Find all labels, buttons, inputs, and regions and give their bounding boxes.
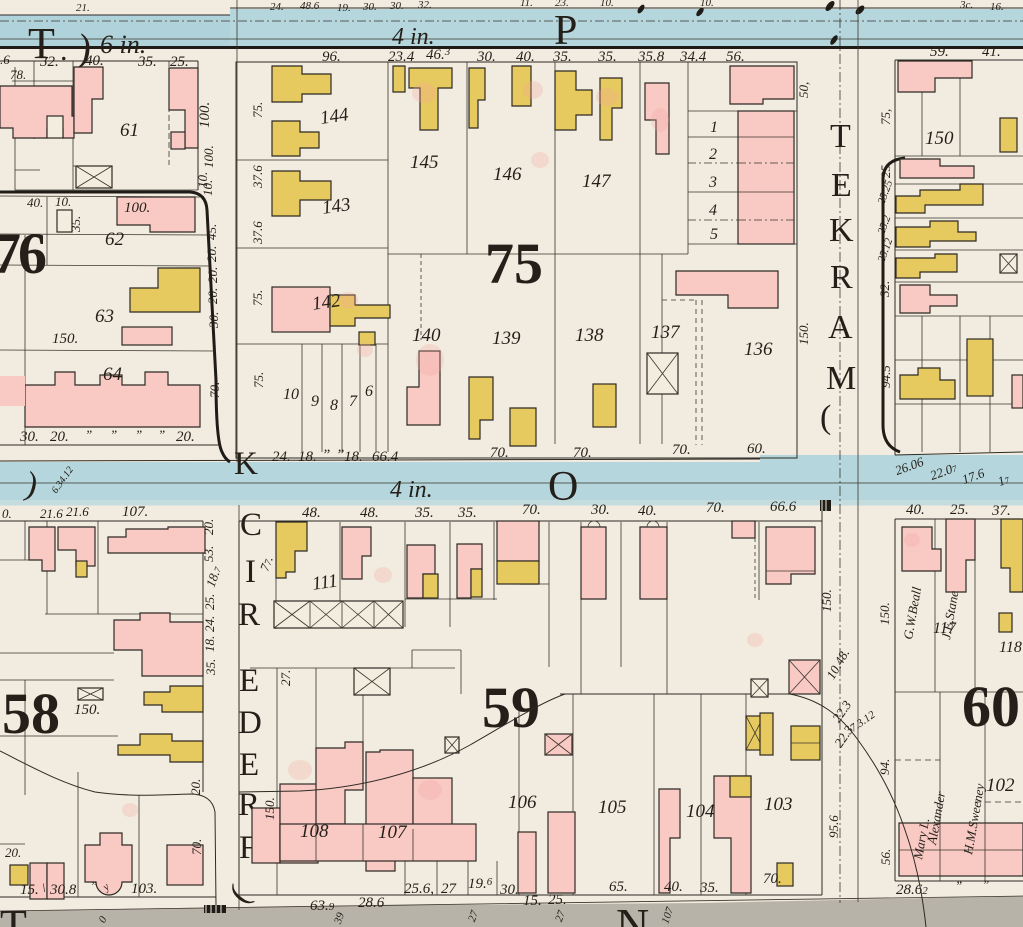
svg-text:18.: 18. bbox=[298, 449, 317, 465]
svg-text:15.: 15. bbox=[20, 882, 39, 898]
svg-text:M: M bbox=[826, 360, 856, 397]
svg-text:24.: 24. bbox=[202, 616, 217, 632]
svg-text:61: 61 bbox=[120, 120, 139, 141]
svg-text:27: 27 bbox=[441, 881, 458, 897]
svg-text:150.: 150. bbox=[819, 589, 834, 612]
svg-text:70.: 70. bbox=[672, 442, 691, 458]
svg-text:35.: 35. bbox=[137, 54, 157, 70]
svg-text:94.5: 94.5 bbox=[878, 365, 893, 388]
svg-text:R: R bbox=[830, 259, 853, 296]
svg-text:37.6: 37.6 bbox=[250, 221, 265, 245]
svg-text:24.: 24. bbox=[272, 449, 291, 465]
svg-text:18.: 18. bbox=[202, 636, 217, 652]
svg-text:100.: 100. bbox=[201, 145, 216, 168]
svg-text:5: 5 bbox=[710, 226, 718, 243]
svg-text:10.: 10. bbox=[200, 180, 215, 196]
svg-text:35.8: 35.8 bbox=[637, 49, 665, 65]
svg-text:10.: 10. bbox=[700, 0, 714, 9]
svg-text:107.: 107. bbox=[122, 504, 148, 520]
svg-text:A: A bbox=[828, 309, 853, 346]
svg-text:21.: 21. bbox=[76, 2, 90, 14]
svg-text:30.: 30. bbox=[389, 0, 404, 12]
svg-text:C: C bbox=[240, 507, 262, 543]
svg-text:K: K bbox=[234, 446, 258, 482]
svg-text:138: 138 bbox=[575, 325, 604, 346]
svg-text:25.: 25. bbox=[878, 162, 893, 178]
svg-text:66.6: 66.6 bbox=[770, 499, 797, 515]
svg-text:30.: 30. bbox=[206, 312, 221, 329]
svg-text:70.: 70. bbox=[189, 839, 204, 855]
svg-text:20.: 20. bbox=[188, 779, 203, 795]
svg-text:107: 107 bbox=[378, 822, 408, 843]
svg-text:.: . bbox=[60, 34, 68, 67]
svg-text:150.: 150. bbox=[74, 702, 100, 718]
svg-text:3c.: 3c. bbox=[959, 0, 973, 11]
svg-text:50,: 50, bbox=[796, 82, 811, 98]
svg-text:(: ( bbox=[820, 399, 831, 436]
svg-text:40.: 40. bbox=[85, 53, 104, 69]
svg-text:63: 63 bbox=[95, 306, 114, 327]
svg-text:150.: 150. bbox=[262, 797, 277, 820]
svg-text:70.: 70. bbox=[207, 382, 222, 398]
svg-text:142: 142 bbox=[311, 290, 343, 315]
svg-text:35.: 35. bbox=[203, 659, 218, 676]
svg-text:30.: 30. bbox=[362, 1, 377, 13]
svg-text:T: T bbox=[0, 901, 27, 927]
svg-text:137: 137 bbox=[651, 322, 681, 343]
svg-text:28.62: 28.62 bbox=[896, 882, 928, 898]
svg-text:4: 4 bbox=[709, 202, 717, 219]
svg-text:”: ” bbox=[85, 427, 92, 442]
svg-text:T: T bbox=[830, 118, 851, 155]
svg-text:59: 59 bbox=[482, 675, 540, 740]
svg-text:70.: 70. bbox=[706, 500, 725, 516]
svg-text:70.: 70. bbox=[522, 502, 541, 518]
svg-text:21.6: 21.6 bbox=[66, 504, 89, 519]
svg-text:10: 10 bbox=[283, 386, 299, 403]
svg-text:20.: 20. bbox=[205, 288, 220, 304]
svg-text:30.: 30. bbox=[590, 502, 610, 518]
svg-text:35.: 35. bbox=[699, 880, 719, 896]
svg-text:70.: 70. bbox=[490, 445, 509, 461]
svg-text:1: 1 bbox=[710, 119, 718, 136]
svg-text:R: R bbox=[238, 597, 260, 633]
svg-text:24.: 24. bbox=[270, 1, 284, 13]
svg-text:20.: 20. bbox=[201, 519, 216, 535]
svg-text:16.: 16. bbox=[990, 1, 1004, 13]
svg-text:139: 139 bbox=[492, 328, 521, 349]
svg-text:100.: 100. bbox=[124, 200, 150, 216]
svg-text:E: E bbox=[239, 747, 259, 783]
svg-text:62: 62 bbox=[105, 229, 125, 250]
svg-text:N: N bbox=[616, 899, 649, 927]
svg-text:25.: 25. bbox=[202, 594, 217, 610]
svg-text:41.: 41. bbox=[982, 44, 1001, 60]
svg-text:18.: 18. bbox=[344, 449, 363, 465]
svg-text:20.: 20. bbox=[5, 845, 21, 860]
svg-text:117: 117 bbox=[933, 620, 957, 637]
svg-text:147: 147 bbox=[582, 171, 612, 192]
svg-text:E: E bbox=[831, 167, 852, 204]
svg-text:66.4: 66.4 bbox=[372, 449, 399, 465]
svg-text:56.: 56. bbox=[726, 49, 745, 65]
svg-text:150: 150 bbox=[925, 128, 954, 149]
svg-text:78.: 78. bbox=[10, 67, 26, 82]
svg-text:23.4: 23.4 bbox=[388, 49, 415, 65]
svg-text:40.: 40. bbox=[27, 195, 43, 210]
svg-text:”: ” bbox=[135, 427, 142, 442]
svg-text:35.: 35. bbox=[552, 49, 572, 65]
svg-text:D: D bbox=[238, 705, 262, 741]
svg-text:”: ” bbox=[158, 427, 165, 442]
svg-text:106: 106 bbox=[508, 792, 537, 813]
svg-text:48.: 48. bbox=[360, 505, 379, 521]
svg-text:O: O bbox=[548, 464, 578, 510]
svg-text:.6: .6 bbox=[0, 52, 10, 67]
svg-text:25.: 25. bbox=[170, 54, 189, 70]
svg-text:53.: 53. bbox=[201, 546, 216, 562]
svg-text:144: 144 bbox=[319, 104, 351, 129]
svg-text:40.: 40. bbox=[906, 502, 925, 518]
svg-text:75: 75 bbox=[485, 231, 543, 296]
svg-text:75.: 75. bbox=[251, 372, 266, 388]
svg-text:25.6,: 25.6, bbox=[404, 881, 434, 897]
svg-text:58: 58 bbox=[2, 681, 60, 746]
svg-text:96.: 96. bbox=[322, 49, 341, 65]
svg-text:11.: 11. bbox=[520, 0, 533, 9]
svg-text:146: 146 bbox=[493, 164, 522, 185]
svg-text:”: ” bbox=[90, 878, 97, 893]
svg-text:35.: 35. bbox=[414, 505, 434, 521]
svg-text:E: E bbox=[239, 663, 259, 699]
svg-text:76: 76 bbox=[0, 221, 46, 286]
svg-text:32.: 32. bbox=[417, 0, 432, 11]
svg-text:63.9: 63.9 bbox=[310, 898, 335, 914]
svg-text:”: ” bbox=[110, 427, 117, 442]
svg-text:25.: 25. bbox=[950, 502, 969, 518]
svg-text:150.: 150. bbox=[796, 322, 811, 345]
svg-text:103: 103 bbox=[764, 794, 793, 815]
svg-text:27.: 27. bbox=[278, 670, 293, 686]
svg-text:150.: 150. bbox=[877, 602, 892, 625]
svg-text:32.: 32. bbox=[877, 281, 892, 298]
svg-text:40.: 40. bbox=[638, 503, 657, 519]
svg-text:K: K bbox=[829, 212, 854, 249]
svg-text:4 in.: 4 in. bbox=[390, 477, 433, 503]
svg-text:21.6: 21.6 bbox=[40, 506, 63, 521]
svg-text:37.6: 37.6 bbox=[250, 165, 265, 189]
svg-text:20.: 20. bbox=[205, 267, 220, 283]
svg-text:75.: 75. bbox=[250, 290, 265, 306]
svg-text:60: 60 bbox=[962, 674, 1020, 739]
svg-text:”: ” bbox=[955, 878, 962, 893]
svg-text:37.: 37. bbox=[991, 503, 1011, 519]
svg-text:I: I bbox=[245, 554, 256, 590]
svg-text:56.: 56. bbox=[878, 849, 893, 865]
svg-text:15.: 15. bbox=[523, 893, 542, 909]
svg-text:103.: 103. bbox=[131, 881, 157, 897]
svg-text:70.: 70. bbox=[763, 871, 782, 887]
svg-text:75.: 75. bbox=[250, 102, 265, 118]
svg-text:30.8: 30.8 bbox=[49, 882, 77, 898]
svg-text:143: 143 bbox=[321, 194, 352, 219]
svg-text:59.: 59. bbox=[930, 44, 949, 60]
svg-text:45.: 45. bbox=[204, 224, 219, 240]
svg-text:40.: 40. bbox=[516, 49, 535, 65]
svg-text:6: 6 bbox=[365, 383, 373, 400]
svg-text:3: 3 bbox=[708, 174, 717, 191]
svg-text:30.: 30. bbox=[499, 882, 519, 898]
svg-text:0.: 0. bbox=[2, 506, 12, 521]
svg-text:100.: 100. bbox=[197, 102, 213, 128]
svg-text:”: ” bbox=[982, 877, 989, 892]
svg-text:48.6: 48.6 bbox=[300, 0, 320, 12]
svg-text:70.: 70. bbox=[573, 445, 592, 461]
svg-text:10.: 10. bbox=[600, 0, 614, 9]
svg-text:102: 102 bbox=[986, 775, 1015, 796]
svg-text:8: 8 bbox=[330, 397, 338, 414]
svg-text:30.: 30. bbox=[19, 429, 39, 445]
svg-text:2: 2 bbox=[709, 146, 717, 163]
svg-text:75,: 75, bbox=[878, 109, 893, 125]
svg-text:40.: 40. bbox=[664, 879, 683, 895]
svg-text:20.: 20. bbox=[176, 429, 195, 445]
svg-text:\: \ bbox=[42, 880, 46, 895]
svg-text:20.: 20. bbox=[50, 429, 69, 445]
svg-text:35.: 35. bbox=[457, 505, 477, 521]
svg-text:”: ” bbox=[322, 447, 330, 463]
svg-text:25.: 25. bbox=[548, 892, 567, 908]
svg-text:60.: 60. bbox=[747, 441, 766, 457]
svg-text:32.: 32. bbox=[39, 54, 59, 70]
svg-text:136: 136 bbox=[744, 339, 773, 360]
svg-text:28.6: 28.6 bbox=[358, 895, 385, 911]
svg-text:30.: 30. bbox=[476, 49, 496, 65]
svg-text:140: 140 bbox=[412, 325, 441, 346]
svg-text:9: 9 bbox=[311, 393, 319, 410]
svg-text:105: 105 bbox=[598, 797, 627, 818]
svg-text:104: 104 bbox=[686, 801, 715, 822]
svg-text:34.4: 34.4 bbox=[679, 49, 707, 65]
svg-text:111: 111 bbox=[311, 570, 339, 594]
svg-text:65.: 65. bbox=[609, 879, 628, 895]
svg-text:7: 7 bbox=[349, 393, 358, 410]
svg-text:23.: 23. bbox=[555, 0, 569, 9]
svg-text:P: P bbox=[554, 8, 577, 54]
svg-text:95.6: 95.6 bbox=[826, 815, 841, 838]
svg-text:19.: 19. bbox=[337, 2, 351, 14]
svg-text:35.: 35. bbox=[597, 49, 617, 65]
svg-text:145: 145 bbox=[410, 152, 439, 173]
svg-text:10.: 10. bbox=[55, 194, 71, 209]
svg-text:108: 108 bbox=[300, 821, 329, 842]
svg-text:20.: 20. bbox=[204, 246, 219, 262]
svg-text:48.: 48. bbox=[302, 505, 321, 521]
svg-text:118: 118 bbox=[999, 639, 1022, 656]
svg-text:150.: 150. bbox=[52, 331, 78, 347]
svg-text:64: 64 bbox=[103, 364, 123, 385]
svg-text:35.: 35. bbox=[68, 216, 83, 233]
